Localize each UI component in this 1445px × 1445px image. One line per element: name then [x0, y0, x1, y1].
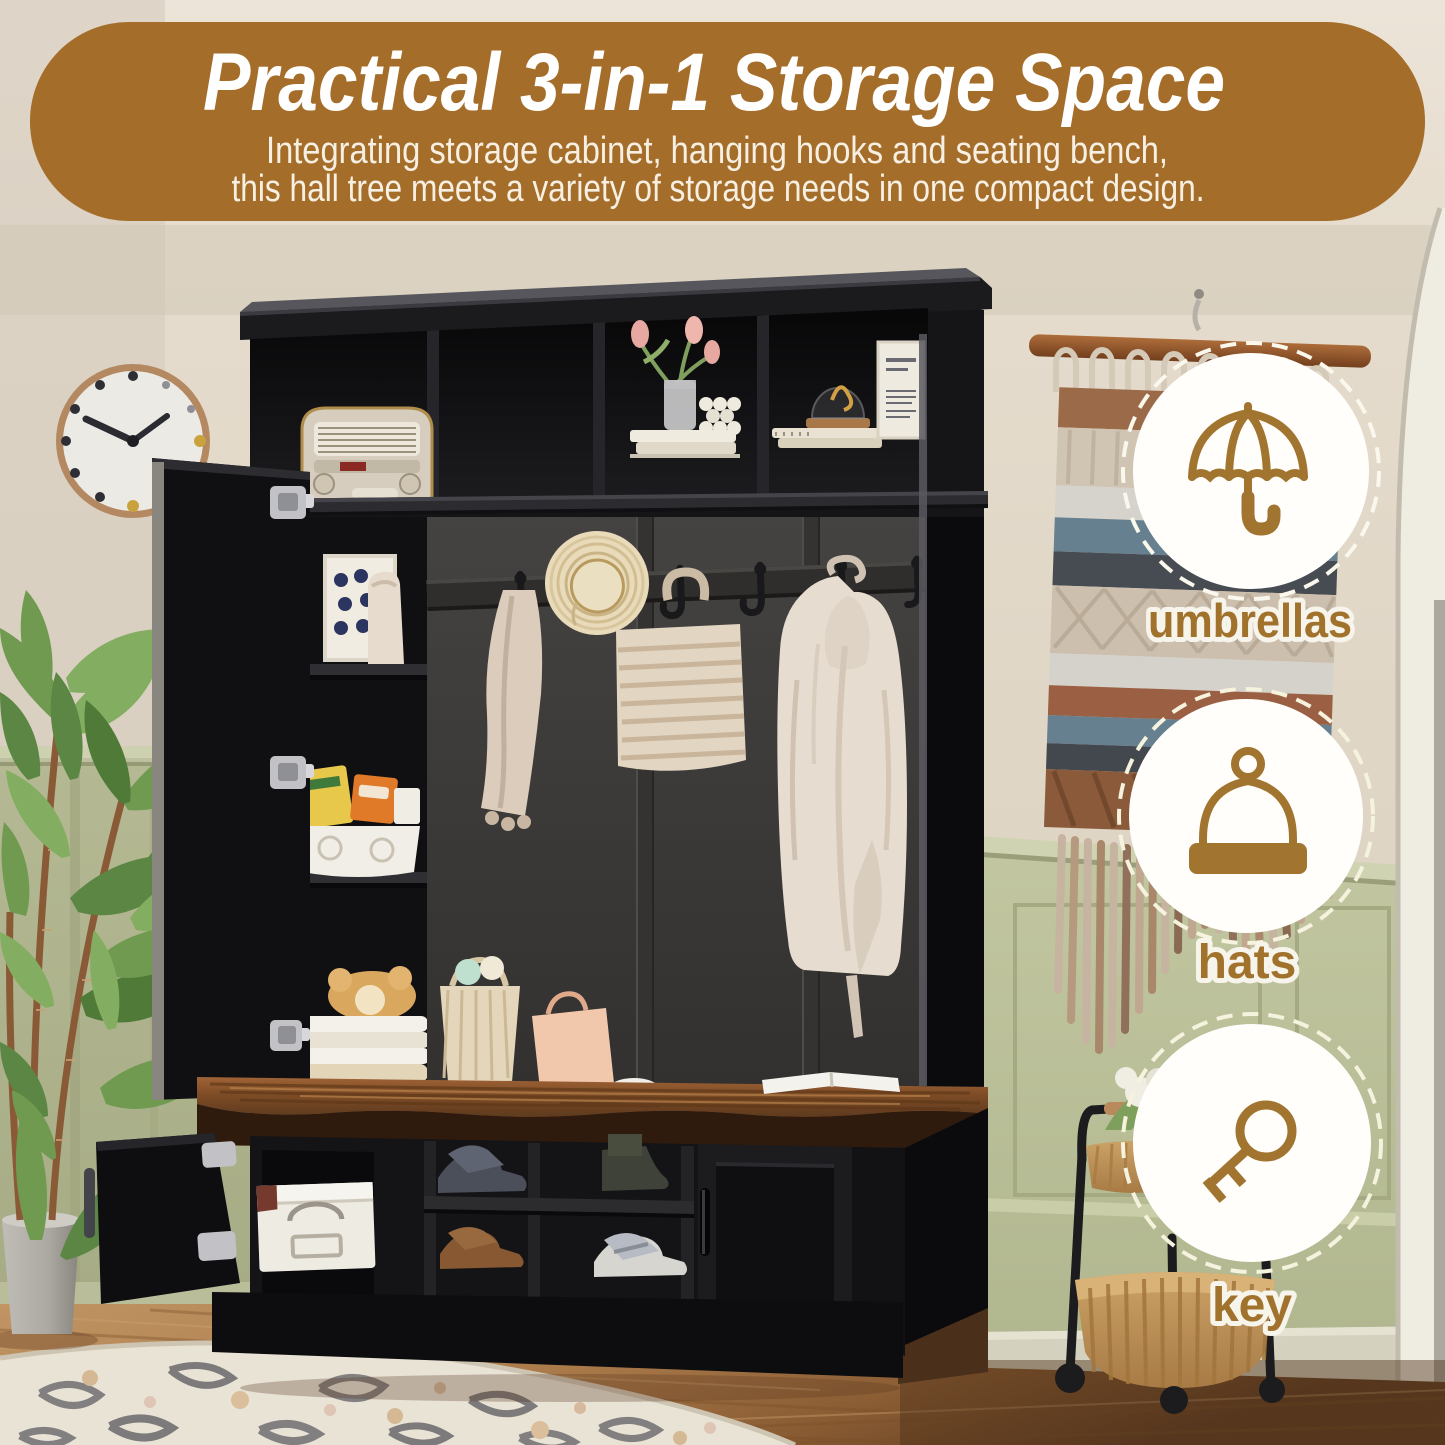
- svg-text:Practical 3-in-1 Storage Space: Practical 3-in-1 Storage Space: [203, 37, 1225, 128]
- svg-text:hats: hats: [1198, 936, 1297, 989]
- svg-text:umbrellas: umbrellas: [1148, 594, 1352, 647]
- svg-text:key: key: [1212, 1279, 1292, 1332]
- svg-text:Integrating storage cabinet, h: Integrating storage cabinet, hanging hoo…: [266, 130, 1168, 172]
- svg-text:this hall tree meets a variety: this hall tree meets a variety of storag…: [232, 168, 1205, 210]
